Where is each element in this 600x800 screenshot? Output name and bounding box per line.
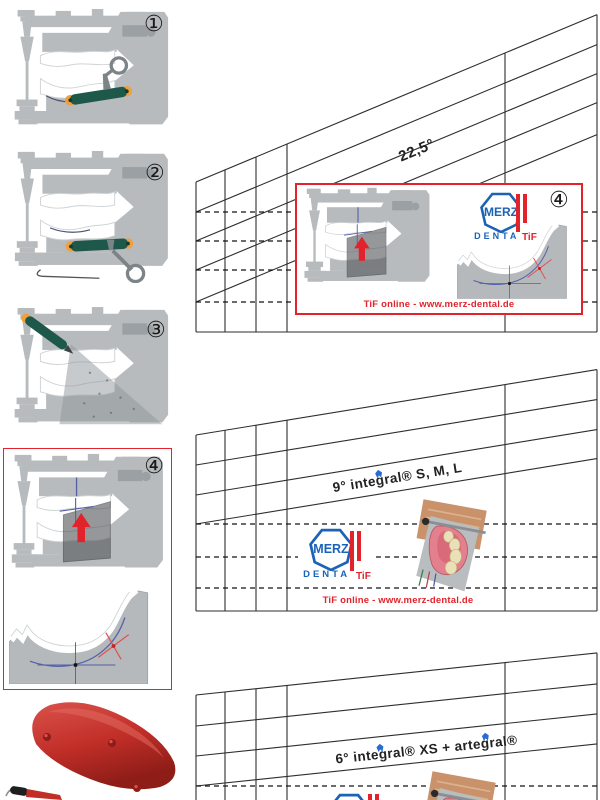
tif-online-url: TiF online - www.merz-dental.de: [317, 595, 479, 606]
tif-online-url: TiF online - www.merz-dental.de: [337, 299, 541, 310]
tif-wordmark: TiF: [356, 571, 371, 582]
merz-heptagon-icon: [327, 792, 371, 800]
tif-bar-icon: [368, 794, 372, 800]
tif-logo: TiF: [516, 194, 538, 246]
inset-illustrations: [297, 185, 581, 313]
red-handled-tool-photo: [6, 785, 62, 800]
inset-step-number-4: ④: [549, 190, 569, 212]
tif-bar-icon: [375, 794, 379, 800]
denture-model-photo-grid9: [414, 499, 487, 592]
tif-bar-icon: [523, 194, 527, 223]
step-number-2: ②: [145, 163, 165, 185]
tif-bar-icon: [516, 194, 520, 232]
step-number-3: ③: [146, 320, 166, 342]
step-number-1: ①: [144, 14, 164, 36]
tif-logo: TiF: [350, 531, 372, 585]
template-grid-6: [196, 653, 597, 800]
tif-bar-icon: [350, 531, 354, 571]
instruction-sheet: ① ② ③ ④ 22,5° 9° integral® S, M, L 6° in…: [0, 0, 600, 800]
tif-wordmark: TiF: [522, 232, 537, 243]
step-number-4: ④: [144, 456, 164, 478]
tif-bar-icon: [357, 531, 361, 561]
step4-highlight-box: ④: [3, 448, 172, 690]
red-bite-plate-photo: [32, 702, 175, 792]
tif-inset-box: MERZ DENTAL TiF ④ TiF online - www.merz-…: [295, 183, 583, 315]
denture-model-photo-grid6: [423, 771, 496, 800]
tif-logo: [368, 794, 390, 800]
step4-illustrations: [4, 449, 169, 687]
template-grid-9: [196, 370, 597, 611]
